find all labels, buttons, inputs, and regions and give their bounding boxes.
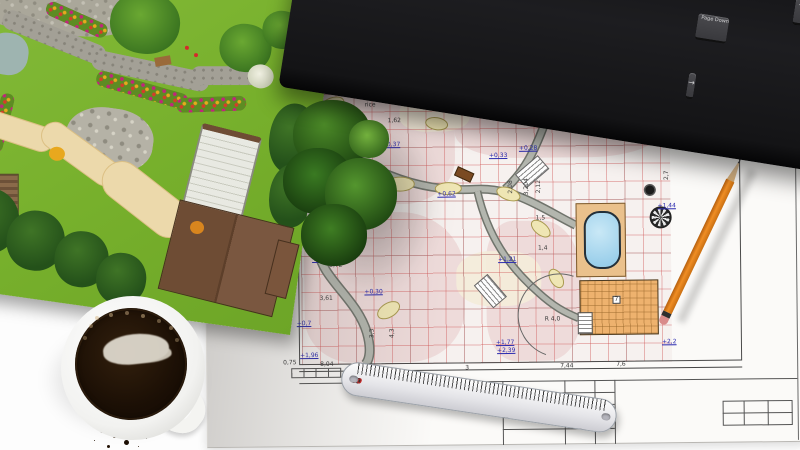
elevation-mark: +0,33 — [489, 153, 507, 159]
dimension-label: 7,6 — [616, 362, 626, 368]
dimension-label: 3 — [465, 365, 469, 371]
arrow-key[interactable]: → — [686, 73, 697, 100]
room-number-label: 7 — [612, 296, 620, 304]
elevation-mark: +1,96 — [300, 353, 318, 359]
dimension-label: 0,75 — [283, 360, 296, 366]
white-flower-tree — [246, 63, 275, 90]
elevation-mark: +1,77 — [496, 340, 514, 346]
elevation-mark: +0,28 — [519, 146, 537, 152]
ruler-slot-right — [601, 413, 611, 421]
playground-swing — [185, 46, 190, 51]
elevation-mark: +0,7 — [297, 321, 312, 327]
dimension-label: 3,204 — [524, 178, 530, 195]
desk-scene: +0,02+0,37+0,28+0,33+0,62+1,44+1,21+0,62… — [0, 0, 800, 450]
elevation-mark: +0,62 — [437, 192, 455, 198]
coffee-cup — [61, 296, 205, 440]
dimension-boxes — [291, 368, 341, 379]
garden-tree — [106, 0, 184, 58]
numpad-key[interactable]: . Del — [792, 0, 800, 27]
keyboard-arrow-cluster: ↑←↓→ — [690, 73, 775, 86]
stairs — [578, 312, 593, 334]
playground-swing — [194, 53, 199, 58]
dimension-label: 1,4 — [538, 246, 548, 252]
dimension-label: 2,7 — [664, 170, 670, 180]
elevation-mark: +1,44 — [657, 203, 675, 209]
dimension-label: 7,44 — [560, 363, 573, 369]
dimension-label: 2,08 — [508, 180, 514, 193]
overhanging-tree — [283, 100, 408, 270]
dimension-label: 4,3 — [390, 328, 396, 338]
garden-pond — [0, 30, 31, 77]
elevation-mark: +2,39 — [497, 348, 515, 354]
coffee-bubbles — [95, 316, 99, 320]
keyboard-key[interactable]: Page Down — [695, 13, 730, 44]
elevation-mark: +1,21 — [498, 257, 516, 263]
dimension-label: 3,3 — [370, 329, 376, 339]
keyboard-nav-cluster: InsertHomePage UpDeleteEndPage Down — [699, 13, 784, 26]
swimming-pool — [584, 211, 622, 269]
dimension-label: 1,5 — [536, 216, 546, 222]
flower-bed — [176, 96, 246, 113]
dimension-label: 8,04 — [320, 362, 333, 368]
dimension-label: R 4,0 — [545, 316, 561, 322]
elevation-mark: +2,2 — [662, 339, 677, 345]
plan-point-marker — [645, 185, 654, 194]
keyboard-numpad: Num Lock/*-789+456↵1230. Del — [797, 0, 800, 15]
compass-rose-icon — [650, 206, 672, 228]
dimension-label: 3,61 — [319, 296, 332, 302]
tree-foliage — [349, 120, 389, 158]
dimension-label: 2,12 — [536, 180, 542, 193]
tree-foliage — [301, 204, 367, 266]
coffee-reflection — [102, 331, 171, 368]
coffee-surface — [75, 308, 187, 420]
